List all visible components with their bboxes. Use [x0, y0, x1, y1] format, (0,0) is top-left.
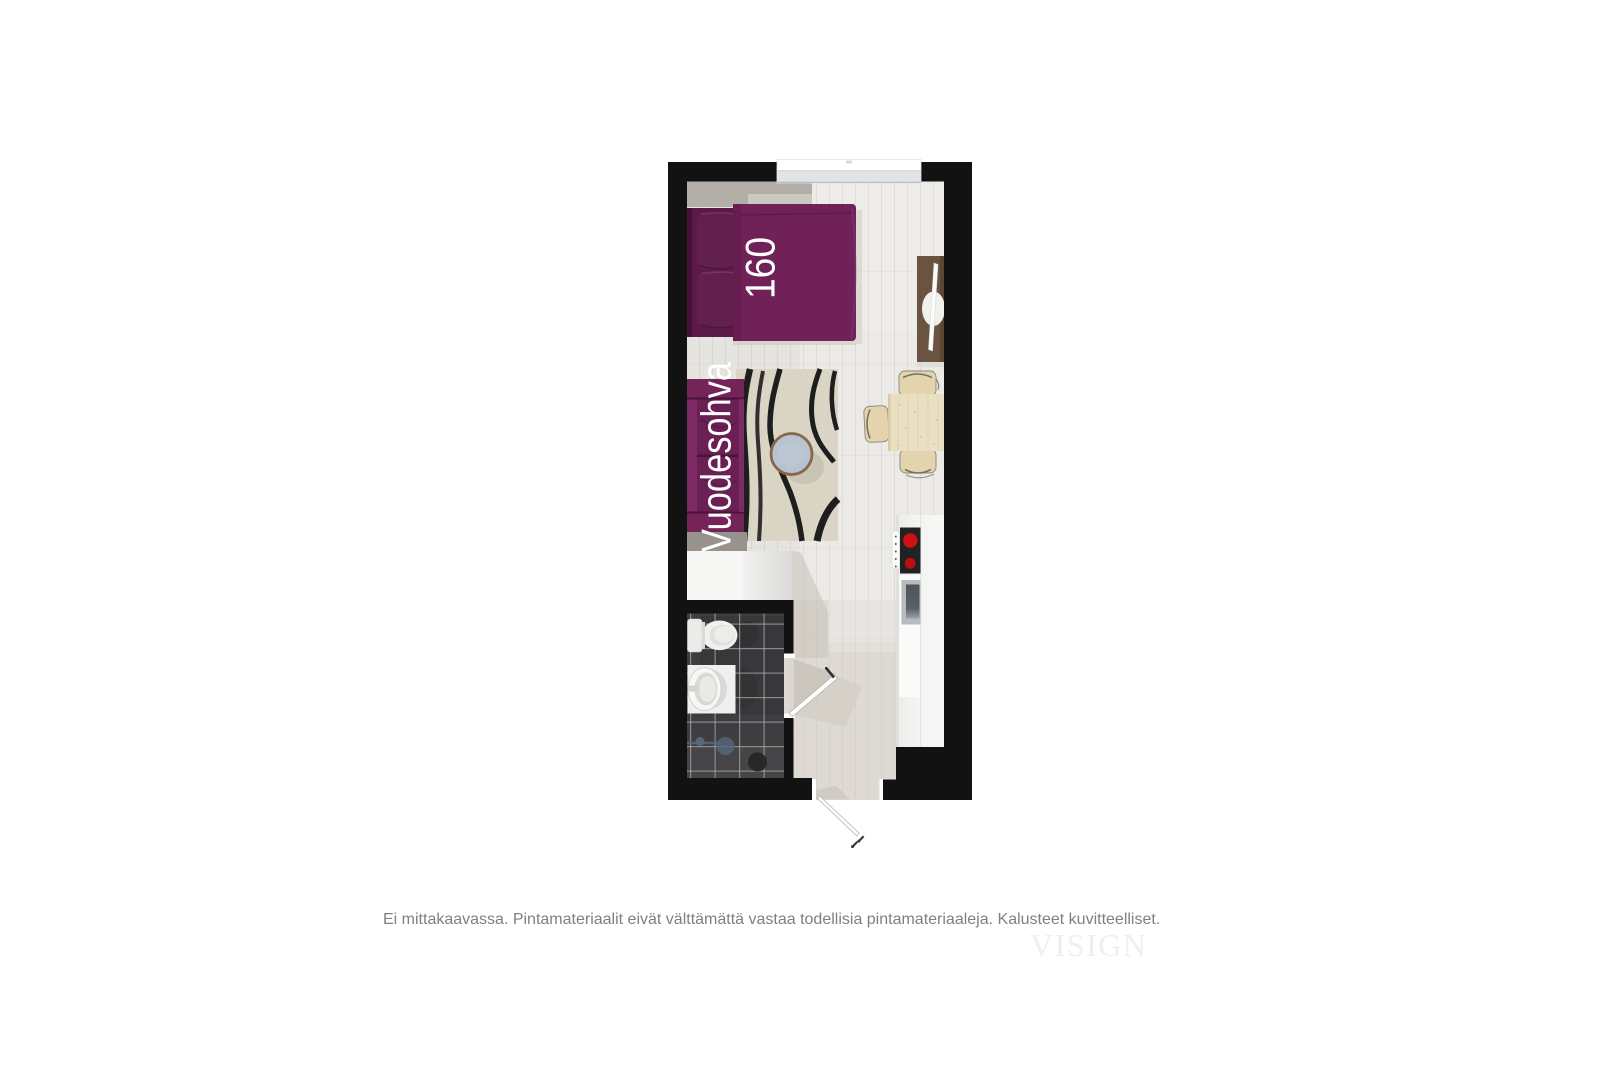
- svg-text:160: 160: [737, 237, 784, 299]
- svg-text:Vuodesohva: Vuodesohva: [693, 361, 740, 552]
